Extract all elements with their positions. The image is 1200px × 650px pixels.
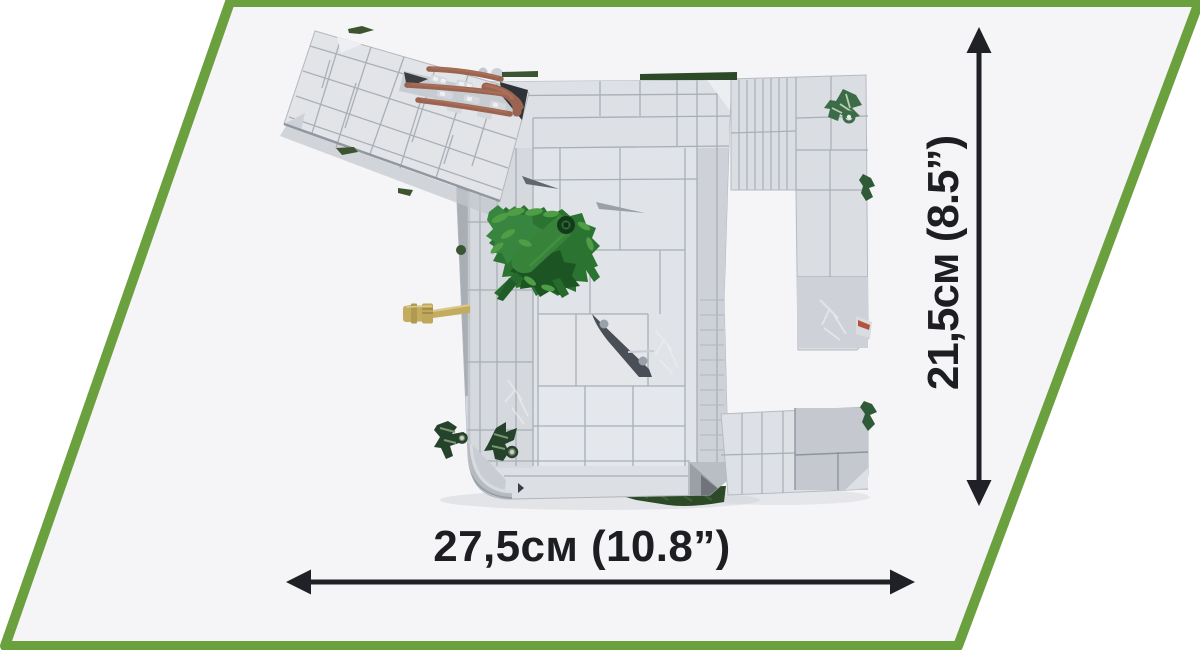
svg-text:27,5см (10.8”): 27,5см (10.8”) bbox=[433, 522, 730, 571]
svg-text:21,5см (8.5”): 21,5см (8.5”) bbox=[919, 136, 968, 390]
